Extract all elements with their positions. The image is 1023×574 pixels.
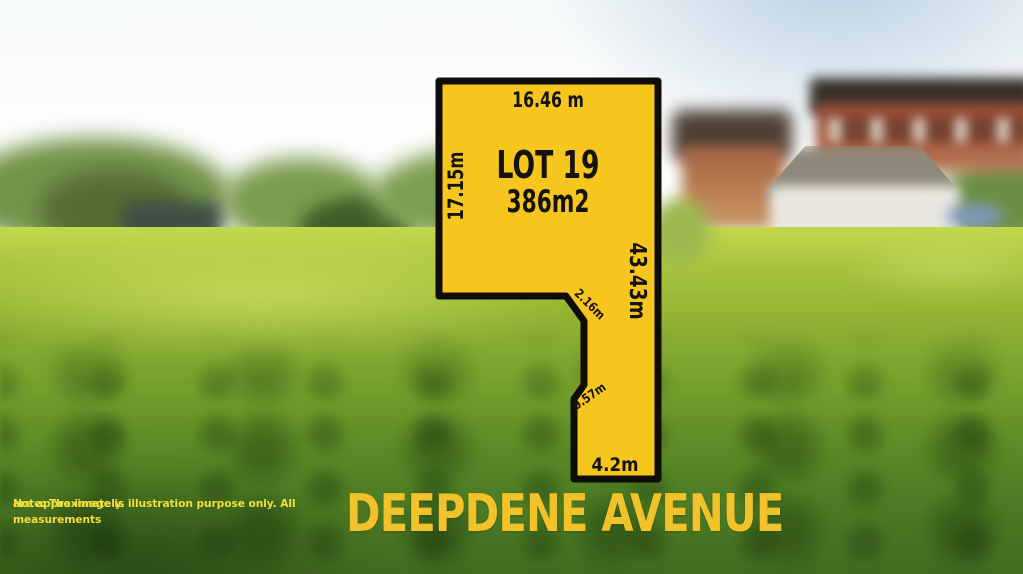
dimension-top: 16.46 m — [465, 88, 632, 112]
dimension-right: 43.43m — [624, 242, 650, 319]
lot-area: 386m2 — [470, 184, 625, 220]
land-sale-flyer: 16.46 m LOT 19 386m2 17.15m 43.43m 2.16m… — [0, 0, 1023, 574]
lot-title: LOT 19 — [470, 143, 625, 187]
street-name: DEEPDENE AVENUE — [346, 484, 784, 544]
disclaimer-line-2: are approximately. — [13, 496, 125, 512]
dimension-left: 17.15m — [444, 152, 468, 221]
dimension-bottom: 4.2m — [591, 454, 638, 476]
